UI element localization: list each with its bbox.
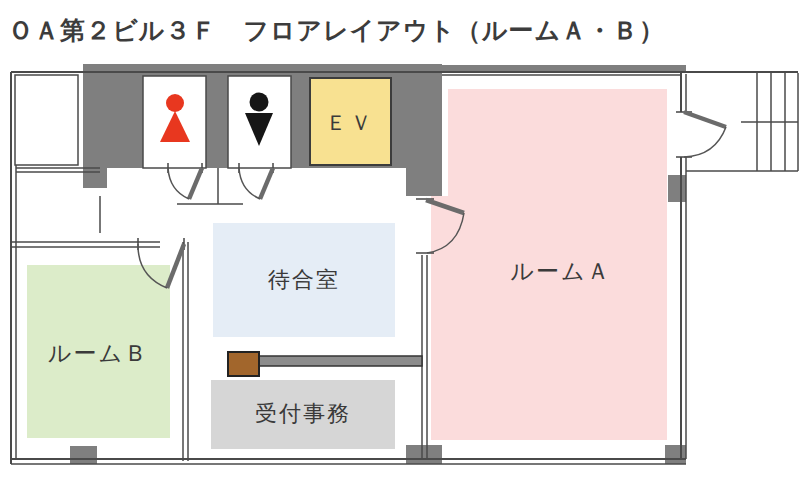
room-a-label: ルームＡ (455, 256, 667, 287)
waiting-room-label: 待合室 (213, 265, 395, 295)
room-b-label: ルームＢ (27, 338, 170, 369)
room-b-door (138, 238, 184, 288)
room-a-corridor-door (416, 199, 464, 253)
room-a-stair-door (676, 112, 726, 157)
staircase (686, 73, 798, 171)
floorplan-drawing (0, 0, 800, 494)
elevator-label: ＥＶ (310, 109, 391, 137)
reception-label: 受付事務 (211, 399, 395, 429)
floorplan-page: ＯＡ第２ビル３Ｆ フロアレイアウト（ルームＡ・Ｂ） (0, 0, 800, 494)
reception-counter (259, 356, 422, 366)
reception-desk (228, 352, 259, 376)
